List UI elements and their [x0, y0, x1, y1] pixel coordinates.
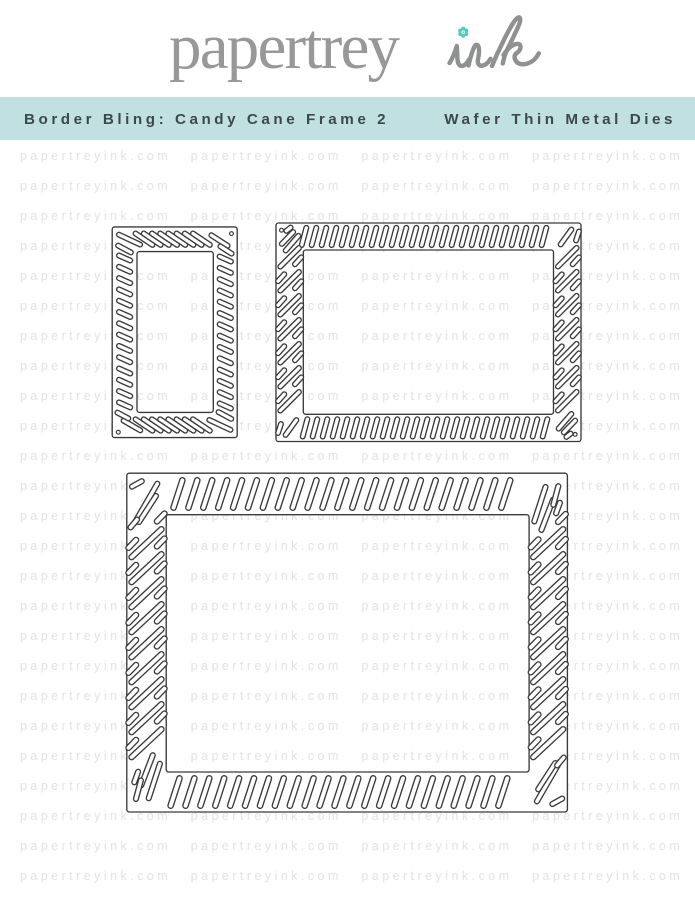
svg-text:Border Bling: Candy Cane Frame: Border Bling: Candy Cane Frame 2	[24, 111, 389, 128]
svg-text:papertrey: papertrey	[169, 11, 401, 83]
svg-text:Wafer Thin Metal Dies: Wafer Thin Metal Dies	[444, 111, 676, 128]
